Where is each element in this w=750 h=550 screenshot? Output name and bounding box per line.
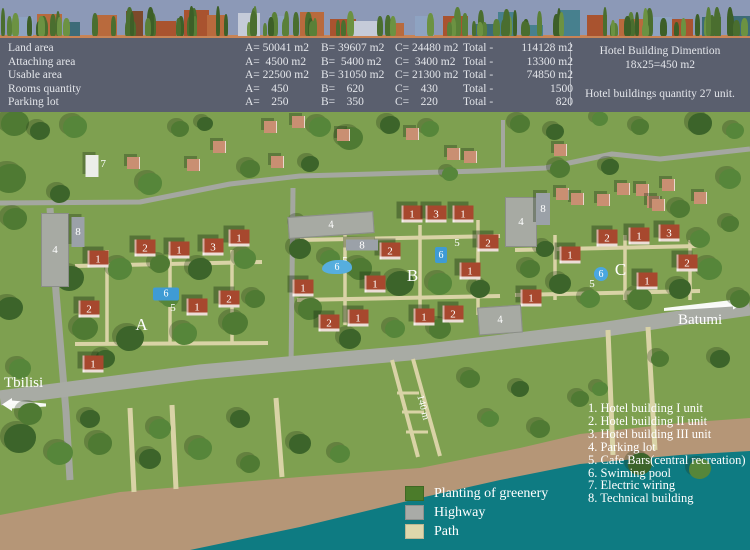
hotel-building-marker-label: 1 [95,253,101,265]
color-legend-row: Highway [405,503,548,522]
skyline-tree [624,16,631,36]
cottage [694,192,707,204]
skyline-tree [681,18,686,36]
hotel-building-marker-label: 2 [387,245,393,257]
color-legend-row: Path [405,522,548,541]
color-legend: Planting of greeneryHighwayPath [405,484,548,541]
tree [138,173,162,195]
skyline-tree [38,16,45,36]
skyline-building [352,21,378,36]
skyline-tree [741,18,748,36]
city-label-batumi: Batumi [678,312,722,329]
skyline-tree [521,21,528,36]
stats-cell: C= 3400 m2 [395,56,463,70]
cottage [617,183,630,195]
technical-building-marker-label: 8 [75,226,81,238]
skyline-tree [293,12,299,36]
skyline-tree [611,20,615,36]
cottage [292,116,305,128]
hotel-building-marker: 2 [380,243,401,260]
hotel-building-marker: 1 [187,299,208,316]
stats-cell: Parking lot [0,96,245,110]
hotel-building-marker-label: 1 [236,232,242,244]
cottage [213,141,226,153]
hotel-building-marker: 1 [560,247,581,264]
zone-letter-label-label: B [407,266,419,286]
hotel-building-marker-label: 1 [460,208,466,220]
parking-lot-marker: 4 [505,197,537,247]
hotel-building-marker: 1 [402,206,423,223]
color-legend-label: Path [434,524,459,540]
cottage [187,159,200,171]
skyline-tree [390,16,396,36]
skyline-tree [176,18,181,36]
stats-cell: Total - [463,96,515,110]
legend-item: 3. Hotel building III unit [588,428,746,441]
skyline-tree [462,13,468,36]
stats-table: Land areaA= 50041 m2B= 39607 m2C= 24480 … [0,38,750,112]
stats-cell: C= 220 [395,96,463,110]
hotel-building-marker-label: 3 [210,241,216,253]
hotel-building-marker-label: 1 [567,249,573,261]
hotel-building-marker-label: 1 [355,312,361,324]
stats-row: Rooms quantityA= 450B= 620C= 430Total -1… [0,83,573,97]
parking-lot-marker-label: 4 [497,314,503,326]
swimming-pool-marker-label: 6 [335,262,340,273]
stats-cell: A= 50041 m2 [245,42,321,56]
hotel-building-marker: 2 [319,315,340,332]
cottage [406,128,419,140]
hotel-building-marker-label: 1 [300,282,306,294]
color-legend-label: Highway [434,505,485,521]
tree [698,258,722,280]
cottage [554,144,567,156]
hotel-building-marker: 3 [659,225,680,242]
hotel-building-marker-label: 3 [433,208,439,220]
technical-building-marker: 8 [72,217,85,247]
color-swatch [405,524,424,539]
zone-letter-label-label: A [135,315,148,335]
stats-cell: B= 5400 m2 [321,56,395,70]
stats-cell: 820 [515,96,573,110]
color-legend-row: Planting of greenery [405,484,548,503]
swimming-pool-marker-label: 6 [599,269,604,280]
hotel-building-marker-label: 2 [142,242,148,254]
zone-letter-label-label: C [615,260,627,280]
stats-cell: C= 21300 m2 [395,69,463,83]
stats-cell: B= 31050 m2 [321,69,395,83]
hotel-building-marker-label: 2 [326,317,332,329]
hotel-building-marker: 1 [293,280,314,297]
stats-cell: Total - [463,69,515,83]
hotel-building-marker-label: 1 [421,311,427,323]
cottage [597,194,610,206]
swimming-pool-marker: 6 [435,247,447,263]
stats-cell: A= 4500 m2 [245,56,321,70]
cottage [271,156,284,168]
stats-cell: C= 24480 m2 [395,42,463,56]
legend-item: 4. Parking lot [588,441,746,454]
hotel-building-marker-label: 1 [194,301,200,313]
technical-building-marker-label: 8 [540,203,546,215]
cottage [464,151,477,163]
hotel-building-marker: 1 [365,276,386,293]
hotel-building-marker-label: 1 [409,208,415,220]
electric-wiring-marker: 7 [86,155,99,177]
tree [173,323,197,345]
stats-cell: 114128 m2 [515,42,573,56]
stats-cell: Total - [463,42,515,56]
skyline-tree [537,11,542,36]
tree [18,403,42,425]
hotel-building-marker-label: 3 [666,227,672,239]
stats-cell: Rooms quantity [0,83,245,97]
hotel-building-marker: 3 [426,206,447,223]
info-dimension-title: Hotel Building Dimention [572,44,748,58]
zone-letter-label: A [135,315,148,335]
skyline-tree [660,18,667,36]
technical-building-marker: 8 [536,193,550,225]
hotel-building-marker: 2 [219,291,240,308]
skyline-tree [706,7,711,36]
swimming-pool-marker-label: 6 [164,289,169,300]
cafe-bar-marker-label: 5 [454,237,460,249]
skyline-elevation-strip [0,0,750,38]
hotel-building-marker-label: 2 [226,293,232,305]
stats-table-rows: Land areaA= 50041 m2B= 39607 m2C= 24480 … [0,42,573,110]
skyline-tree [643,8,648,36]
skyline-tree [224,14,228,36]
hotel-building-marker: 2 [597,230,618,247]
hotel-building-marker-label: 1 [528,292,534,304]
skyline-tree [92,13,98,36]
tree [688,113,712,135]
stats-cell: Total - [463,83,515,97]
color-legend-label: Planting of greenery [434,486,548,502]
skyline-tree [513,10,517,36]
skyline-tree [12,13,19,36]
hotel-building-marker-label: 1 [176,244,182,256]
tree [3,208,27,230]
skyline-tree [1,8,5,36]
skyline-tree [284,11,289,36]
hotel-building-marker: 2 [478,235,499,252]
skyline-tree [309,21,316,36]
stats-cell: 13300 m2 [515,56,573,70]
info-dimension-value: 18x25=450 m2 [572,58,748,72]
stats-cell: B= 350 [321,96,395,110]
hotel-building-marker-label: 2 [485,237,491,249]
cafe-bar-marker-label: 5 [170,302,176,314]
stats-cell: A= 22500 m2 [245,69,321,83]
stats-cell: Total - [463,56,515,70]
stats-cell: 74850 m2 [515,69,573,83]
hotel-building-marker-label: 2 [86,303,92,315]
hotel-building-marker: 2 [443,306,464,323]
cottage [337,129,350,141]
skyline-tree [477,22,483,36]
stats-cell: A= 450 [245,83,321,97]
skyline-tree [674,22,679,36]
technical-building-marker: 8 [346,240,378,251]
hotel-building-marker: 1 [88,251,109,268]
cottage [447,148,460,160]
parking-lot-marker: 4 [477,304,523,335]
swimming-pool-marker: 6 [594,267,608,281]
tree [628,288,652,310]
zone-letter-label: B [407,266,419,286]
skyline-tree [447,22,452,36]
skyline-tree [695,14,700,36]
skyline-tree [503,9,510,36]
skyline-tree [559,12,564,36]
parking-lot-marker: 4 [41,213,69,287]
hotel-building-marker: 1 [348,310,369,327]
legend-item: 2. Hotel building II unit [588,415,746,428]
cafe-bar-marker: 5 [170,302,176,314]
hotel-building-marker: 1 [414,309,435,326]
stats-cell: B= 620 [321,83,395,97]
stats-cell: Land area [0,42,245,56]
parking-lot-marker-label: 4 [52,244,58,256]
hotel-building-marker-label: 1 [636,230,642,242]
skyline-tree [145,18,151,36]
hotel-info-panel: Hotel Building Dimention 18x25=450 m2 Ho… [572,44,748,101]
skyline-building [155,21,176,36]
parking-lot-marker-label: 4 [518,216,524,228]
color-swatch [405,505,424,520]
skyline-tree [7,16,12,36]
skyline-tree [336,20,340,36]
swimming-pool-marker-label: 6 [439,250,444,261]
legend-item: 8. Technical building [588,492,746,505]
skyline-tree [57,17,62,36]
stats-row: Usable areaA= 22500 m2B= 31050 m2C= 2130… [0,69,573,83]
tree [88,433,112,455]
table-divider [570,42,571,106]
cottage [556,188,569,200]
cottage [571,193,584,205]
technical-building-marker-label: 8 [359,239,365,251]
cottage [127,157,140,169]
map-legend-list: 1. Hotel building I unit2. Hotel buildin… [588,402,746,505]
skyline-tree [63,18,70,36]
hotel-building-marker-label: 1 [90,358,96,370]
cottage [662,179,675,191]
skyline-tree [727,7,733,36]
skyline-tree [427,13,434,36]
tree [63,116,87,138]
hotel-building-marker: 3 [203,239,224,256]
skyline-tree [603,7,607,36]
stats-cell: A= 250 [245,96,321,110]
hotel-building-marker: 1 [453,206,474,223]
hotel-building-marker-label: 1 [467,265,473,277]
stats-cell: C= 430 [395,83,463,97]
stats-cell: B= 39607 m2 [321,42,395,56]
cafe-bar-marker: 5 [454,237,460,249]
site-map: 1213121211312211121122131211444488875555… [0,112,750,550]
legend-item: 5. Cafe Bars(central recreation) [588,454,746,467]
hotel-building-marker: 1 [169,242,190,259]
tree [188,258,212,280]
site-plan-poster: Land areaA= 50041 m2B= 39607 m2C= 24480 … [0,0,750,550]
skyline-tree [130,12,134,36]
tree [108,258,132,280]
skyline-tree [263,23,267,36]
color-swatch [405,486,424,501]
cafe-bar-marker-label: 5 [589,278,595,290]
skyline-tree [733,20,740,36]
hotel-building-marker: 2 [677,255,698,272]
hotel-building-marker: 1 [629,228,650,245]
swimming-pool-marker: 6 [322,260,352,274]
skyline-tree [189,6,194,36]
parking-lot-marker-label: 4 [328,219,334,231]
skyline-tree [216,6,220,36]
cafe-bar-marker: 5 [589,278,595,290]
stats-cell: Attaching area [0,56,245,70]
skyline-tree [377,16,383,36]
skyline-tree [635,12,639,36]
hotel-building-marker: 2 [135,240,156,257]
zone-letter-label: C [615,260,627,280]
legend-item: 1. Hotel building I unit [588,402,746,415]
tree [428,273,452,295]
hotel-building-marker: 1 [637,273,658,290]
skyline-tree [341,20,346,36]
stats-row: Parking lotA= 250B= 350C= 220Total -820 [0,96,573,110]
cottage [264,121,277,133]
skyline-tree [347,11,354,36]
hotel-building-marker: 1 [521,290,542,307]
hotel-building-marker: 1 [83,356,104,373]
skyline-tree [472,21,476,36]
swimming-pool-marker: 6 [153,288,179,301]
electric-wiring-marker-label: 7 [101,158,107,170]
hotel-building-marker: 1 [460,263,481,280]
stats-row: Attaching areaA= 4500 m2B= 5400 m2C= 340… [0,56,573,70]
hotel-building-marker-label: 2 [450,308,456,320]
info-quantity: Hotel buildings quantity 27 unit. [572,87,748,101]
skyline-tree [493,19,500,36]
stats-cell: 1500 [515,83,573,97]
skyline-tree [111,16,116,36]
cottage [652,199,665,211]
hotel-building-marker: 1 [229,230,250,247]
hotel-building-marker-label: 2 [684,257,690,269]
city-label-tbilisi: Tbilisi [4,375,43,392]
stats-cell: Usable area [0,69,245,83]
skyline-tree [27,16,32,36]
cottage [636,184,649,196]
stats-row: Land areaA= 50041 m2B= 39607 m2C= 24480 … [0,42,573,56]
hotel-building-marker: 2 [79,301,100,318]
hotel-building-marker-label: 2 [604,232,610,244]
skyline-tree [714,7,720,36]
hotel-building-marker-label: 1 [644,275,650,287]
hotel-building-marker-label: 1 [372,278,378,290]
skyline-tree [250,11,257,36]
skyline-tree [268,17,274,36]
tree [188,438,212,460]
